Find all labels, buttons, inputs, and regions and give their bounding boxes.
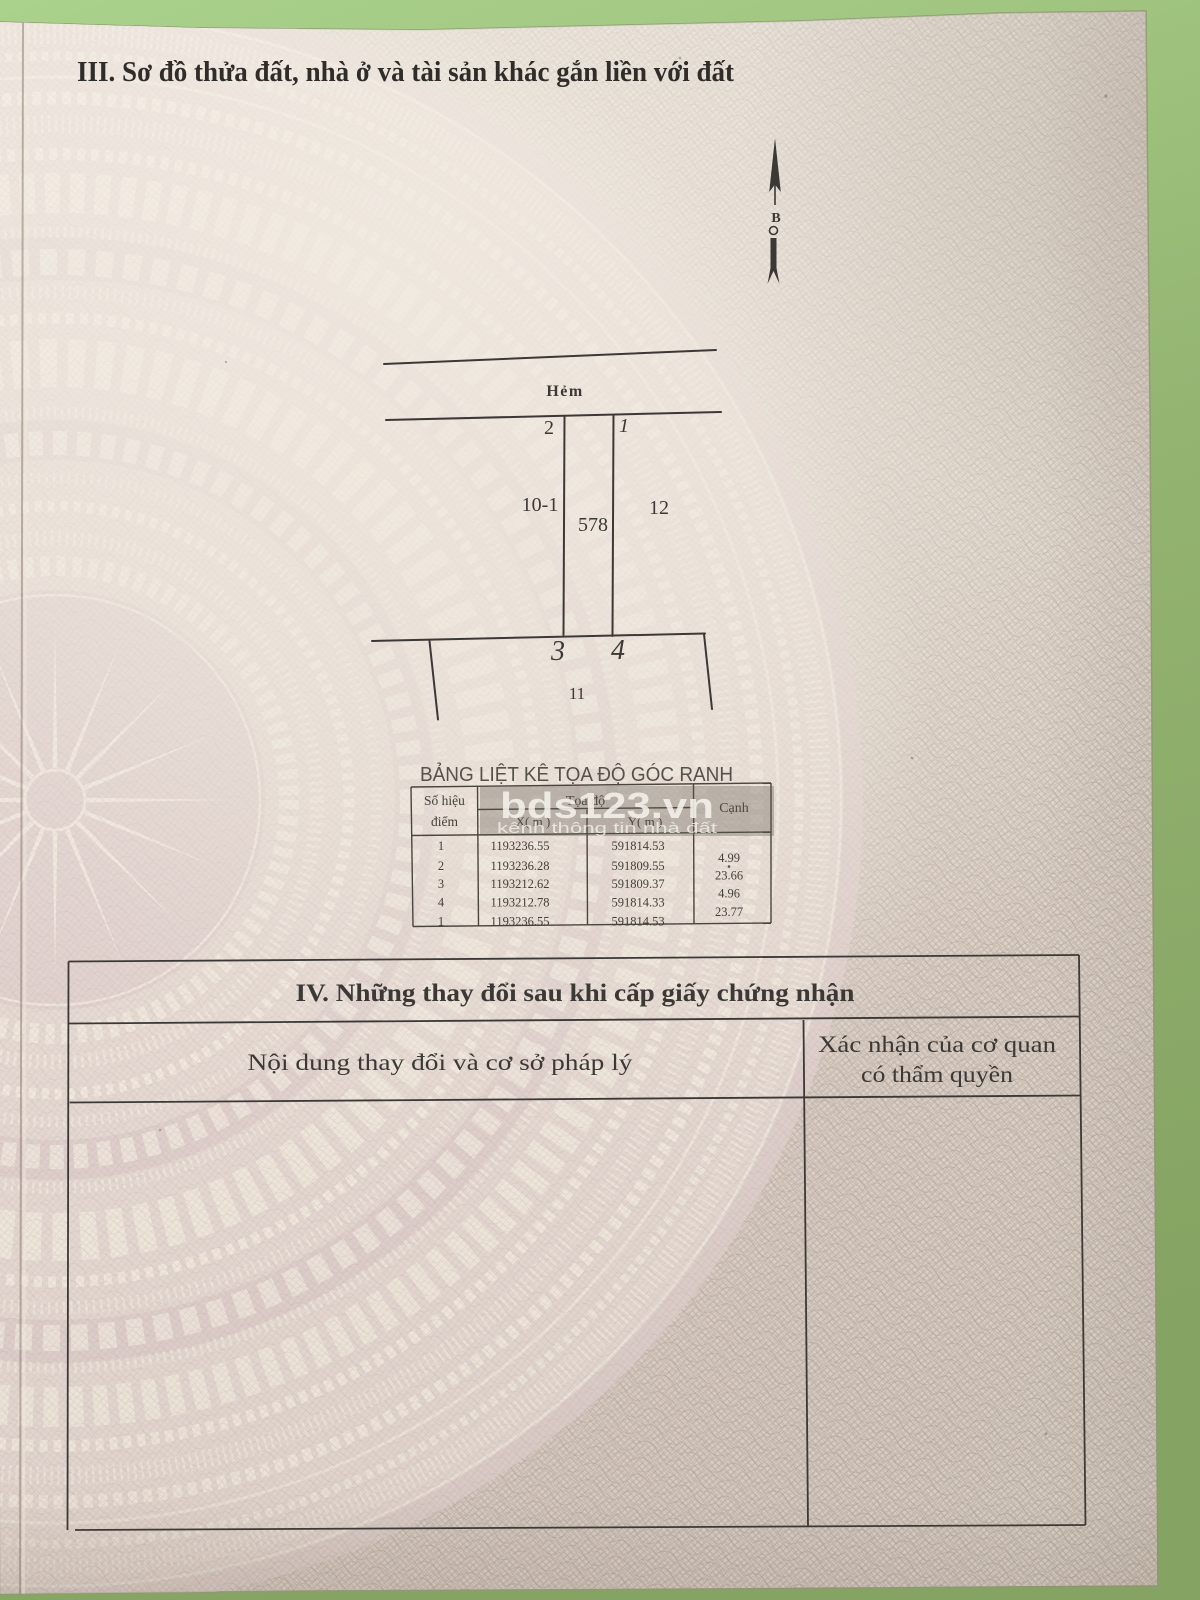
svg-text:3: 3 <box>550 636 565 667</box>
svg-text:1: 1 <box>438 839 444 853</box>
svg-text:3: 3 <box>438 877 444 891</box>
svg-text:591809.37: 591809.37 <box>611 877 664 891</box>
svg-text:IV. Những thay đổi sau khi cấp: IV. Những thay đổi sau khi cấp giấy chứn… <box>296 980 855 1007</box>
svg-text:1: 1 <box>438 915 444 929</box>
svg-text:4: 4 <box>438 896 445 910</box>
svg-text:kênh thông tin nhà đất: kênh thông tin nhà đất <box>497 821 717 837</box>
svg-text:Hẻm: Hẻm <box>546 383 583 400</box>
svg-text:2: 2 <box>544 417 554 439</box>
svg-text:B: B <box>771 211 780 226</box>
svg-text:4: 4 <box>611 635 625 666</box>
svg-text:BẢNG LIỆT KÊ TỌA ĐỘ GÓC RANH: BẢNG LIỆT KÊ TỌA ĐỘ GÓC RANH <box>420 763 733 786</box>
svg-text:12: 12 <box>649 497 669 519</box>
svg-text:1193212.78: 1193212.78 <box>491 896 550 910</box>
svg-text:23.77: 23.77 <box>715 905 743 919</box>
svg-text:4.99: 4.99 <box>718 851 740 865</box>
svg-text:1193236.55: 1193236.55 <box>491 839 550 853</box>
svg-text:591814.53: 591814.53 <box>611 915 664 929</box>
svg-text:Nội dung thay đổi và cơ sở phá: Nội dung thay đổi và cơ sở pháp lý <box>248 1050 634 1075</box>
svg-text:11: 11 <box>569 684 585 703</box>
svg-text:2: 2 <box>438 859 444 873</box>
svg-text:1: 1 <box>619 415 629 437</box>
svg-text:591814.33: 591814.33 <box>611 896 664 910</box>
svg-text:bds123.vn: bds123.vn <box>500 785 714 826</box>
svg-text:Số hiệu: Số hiệu <box>424 793 465 808</box>
svg-text:578: 578 <box>578 514 608 536</box>
svg-text:591809.55: 591809.55 <box>611 859 664 873</box>
svg-text:1193236.55: 1193236.55 <box>491 915 550 929</box>
svg-text:23.66: 23.66 <box>715 869 743 883</box>
svg-text:591814.53: 591814.53 <box>611 839 664 853</box>
svg-text:có thẩm quyền: có thẩm quyền <box>861 1062 1014 1087</box>
svg-text:10-1: 10-1 <box>522 494 559 516</box>
svg-text:1193212.62: 1193212.62 <box>491 877 550 891</box>
svg-text:điểm: điểm <box>431 814 458 829</box>
svg-text:Xác nhận của cơ quan: Xác nhận của cơ quan <box>818 1032 1057 1057</box>
svg-text:4.96: 4.96 <box>718 887 740 901</box>
svg-text:III. Sơ đồ thửa đất, nhà ở và: III. Sơ đồ thửa đất, nhà ở và tài sản kh… <box>77 57 735 88</box>
svg-text:1193236.28: 1193236.28 <box>491 859 550 873</box>
